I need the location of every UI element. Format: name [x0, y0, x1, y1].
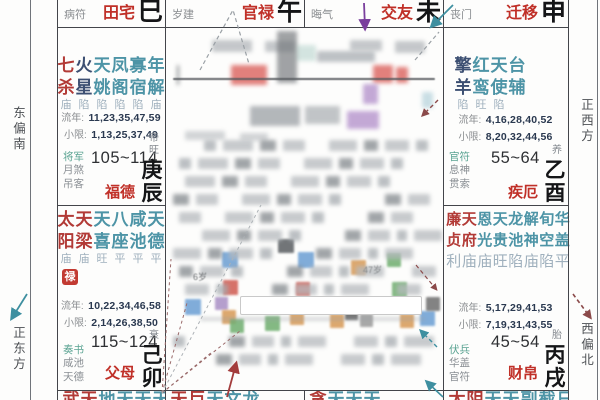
- life-stage: 养: [548, 144, 563, 156]
- outer-left-rule: [30, 0, 31, 400]
- star-解神: 解神庙: [524, 209, 540, 264]
- palace-name: 财帛: [508, 362, 538, 383]
- branch-char: 午: [277, 0, 302, 25]
- cropped-star-char: 日: [556, 390, 568, 400]
- star-龙池: 龙池陷: [508, 209, 524, 264]
- cropped-star-char: 天: [502, 390, 520, 400]
- star-天喜: 天喜旺: [93, 209, 111, 266]
- redacted-tooltip-box: [240, 296, 422, 315]
- cropped-star-char: 天: [80, 390, 98, 400]
- cropped-star-char: 天: [134, 390, 152, 400]
- cropped-star-char: 武: [62, 390, 80, 400]
- cropped-star-char: 天: [116, 390, 134, 400]
- grid-line: [57, 0, 58, 400]
- star-天梁: 天梁庙: [75, 209, 93, 266]
- cropped-star-char: 天: [170, 390, 188, 400]
- cropped-star-char: 天: [152, 390, 165, 400]
- star-天贵: 天贵旺: [493, 209, 509, 264]
- star-红鸾: 红鸾旺: [472, 55, 490, 112]
- cropped-star-char: 巨: [188, 390, 206, 400]
- palace-jiaoyou-wei: 晦气 交友 未: [304, 0, 443, 27]
- age-note: 47岁: [363, 263, 382, 276]
- minor-stars: 奏书 咸池 天德: [63, 344, 84, 385]
- palace-sliver-bottom-4: 太阴天天副截日: [443, 390, 568, 400]
- cropped-star-char: 天: [363, 390, 381, 400]
- star-七杀: 七杀庙: [57, 55, 75, 112]
- star-恩光: 恩光庙: [477, 209, 493, 264]
- cropped-star-char: 截: [538, 390, 556, 400]
- star-八座: 八座平: [111, 209, 129, 266]
- palace-jie-yiyou: 擎羊陷红鸾旺天使陷台辅 流年: 4,16,28,40,52 小限: 8,20,3…: [443, 27, 568, 205]
- palace-name: 父母: [105, 362, 135, 383]
- stem-branch: 己卯: [141, 344, 163, 390]
- life-stage: 衰: [145, 329, 160, 341]
- palace-name: 迁移: [506, 0, 538, 23]
- cropped-star-char: 天: [327, 390, 345, 400]
- grid-line: [57, 27, 569, 28]
- palace-name: 福德: [105, 181, 135, 202]
- cropped-star-char: 天: [484, 390, 502, 400]
- grid-line: [443, 205, 569, 206]
- hua-lu-badge: 禄: [62, 269, 78, 285]
- minor-stars: 伏兵 华盖 官符: [449, 344, 470, 385]
- grid-line: [304, 0, 305, 27]
- grid-line: [568, 0, 569, 400]
- year-god-label: 晦气: [311, 6, 333, 22]
- branch-char: 未: [416, 0, 441, 25]
- star-太阳: 太阳庙: [57, 209, 75, 266]
- age-range: 55~64: [491, 149, 540, 168]
- grid-line: [443, 0, 444, 400]
- age-note: 6岁: [193, 270, 207, 283]
- palace-sliver-bottom-3: 贪天天天: [304, 390, 443, 400]
- year-god-label: 丧门: [450, 6, 472, 22]
- grid-line: [304, 390, 305, 400]
- stem-branch-column: 帝旺 庚辰: [140, 27, 164, 205]
- cropped-star-char: 太: [448, 390, 466, 400]
- palace-name: 田宅: [103, 0, 135, 23]
- cropped-star-char: 文: [224, 390, 242, 400]
- star-天使: 天使陷: [490, 55, 508, 112]
- cropped-star-char: 阴: [466, 390, 484, 400]
- year-god-label: 病符: [64, 6, 86, 22]
- star-擎羊: 擎羊陷: [454, 55, 472, 112]
- cropped-star-char: 龙: [242, 390, 260, 400]
- palace-name: 交友: [381, 0, 413, 23]
- age-range: 45~54: [491, 333, 540, 352]
- palace-name: 疾厄: [508, 181, 538, 202]
- palace-sliver-bottom-1: 武天地天天天蜚: [57, 390, 165, 400]
- palace-fude-gengchen: 七杀庙火星陷天姚陷凤阁陷寡宿陷年解庙 流年: 11,23,35,47,59 小限…: [57, 27, 165, 205]
- star-火星: 火星陷: [75, 55, 93, 112]
- palace-tianzhai-si: 病符 田宅 巳: [57, 0, 165, 27]
- cropped-star-char: 天: [206, 390, 224, 400]
- stem-branch: 丙戌: [544, 344, 566, 390]
- cropped-star-char: 贪: [309, 390, 327, 400]
- palace-caibo-bingxu: 廉贞利天府庙恩光庙天贵旺龙池陷解神庙旬空陷华盖平 流年: 5,17,29,41,…: [443, 205, 568, 390]
- life-stage: 胎: [548, 329, 563, 341]
- stem-branch-column: 养 乙酉: [543, 27, 567, 205]
- cropped-star-char: 天: [345, 390, 363, 400]
- direction-label-west: 正西方: [577, 98, 596, 145]
- stem-branch-column: 胎 丙戌: [543, 205, 567, 390]
- direction-label-east-south: 东偏南: [9, 106, 28, 153]
- grid-line: [57, 205, 166, 206]
- palace-name: 官禄: [242, 0, 274, 23]
- cropped-star-char: 地: [98, 390, 116, 400]
- direction-label-east: 正东方: [9, 326, 28, 373]
- stem-branch: 乙酉: [544, 159, 566, 205]
- stem-branch-column: 衰 己卯: [140, 205, 164, 390]
- palace-sliver-bottom-2: 天巨天文龙: [165, 390, 304, 400]
- star-凤阁: 凤阁陷: [111, 55, 129, 112]
- ziwei-doushu-chart: 东偏南 正东方 正西方 西偏北 病符 田宅 巳 岁建 官禄 午 晦气 交友 未 …: [0, 0, 600, 400]
- star-台辅: 台辅: [508, 55, 526, 112]
- grid-line: [165, 0, 166, 400]
- star-廉贞: 廉贞利: [446, 209, 462, 264]
- cropped-star-char: 副: [520, 390, 538, 400]
- minor-stars: 官符 息神 贯索: [449, 151, 470, 192]
- star-天府: 天府庙: [462, 209, 478, 264]
- star-天姚: 天姚陷: [93, 55, 111, 112]
- palace-guanlu-wu: 岁建 官禄 午: [165, 0, 304, 27]
- branch-char: 巳: [138, 0, 163, 25]
- palace-qianyi-shen: 丧门 迁移 申: [443, 0, 568, 27]
- outer-right-rule: [597, 0, 598, 400]
- branch-char: 申: [541, 0, 566, 25]
- grid-line: [57, 390, 569, 391]
- stem-branch: 庚辰: [141, 159, 163, 205]
- stars-row: 擎羊陷红鸾旺天使陷台辅: [454, 55, 526, 112]
- life-stage: 帝旺: [145, 132, 160, 156]
- direction-label-west-north: 西偏北: [577, 322, 596, 369]
- minor-stars: 将军 月煞 吊客: [63, 151, 84, 192]
- palace-fumu-jimao: 太阳庙天梁庙天喜旺八座平咸池平天德平 禄 流年: 10,22,34,46,58 …: [57, 205, 165, 390]
- year-god-label: 岁建: [172, 6, 194, 22]
- redacted-center-panel: 6岁 47岁: [165, 27, 443, 390]
